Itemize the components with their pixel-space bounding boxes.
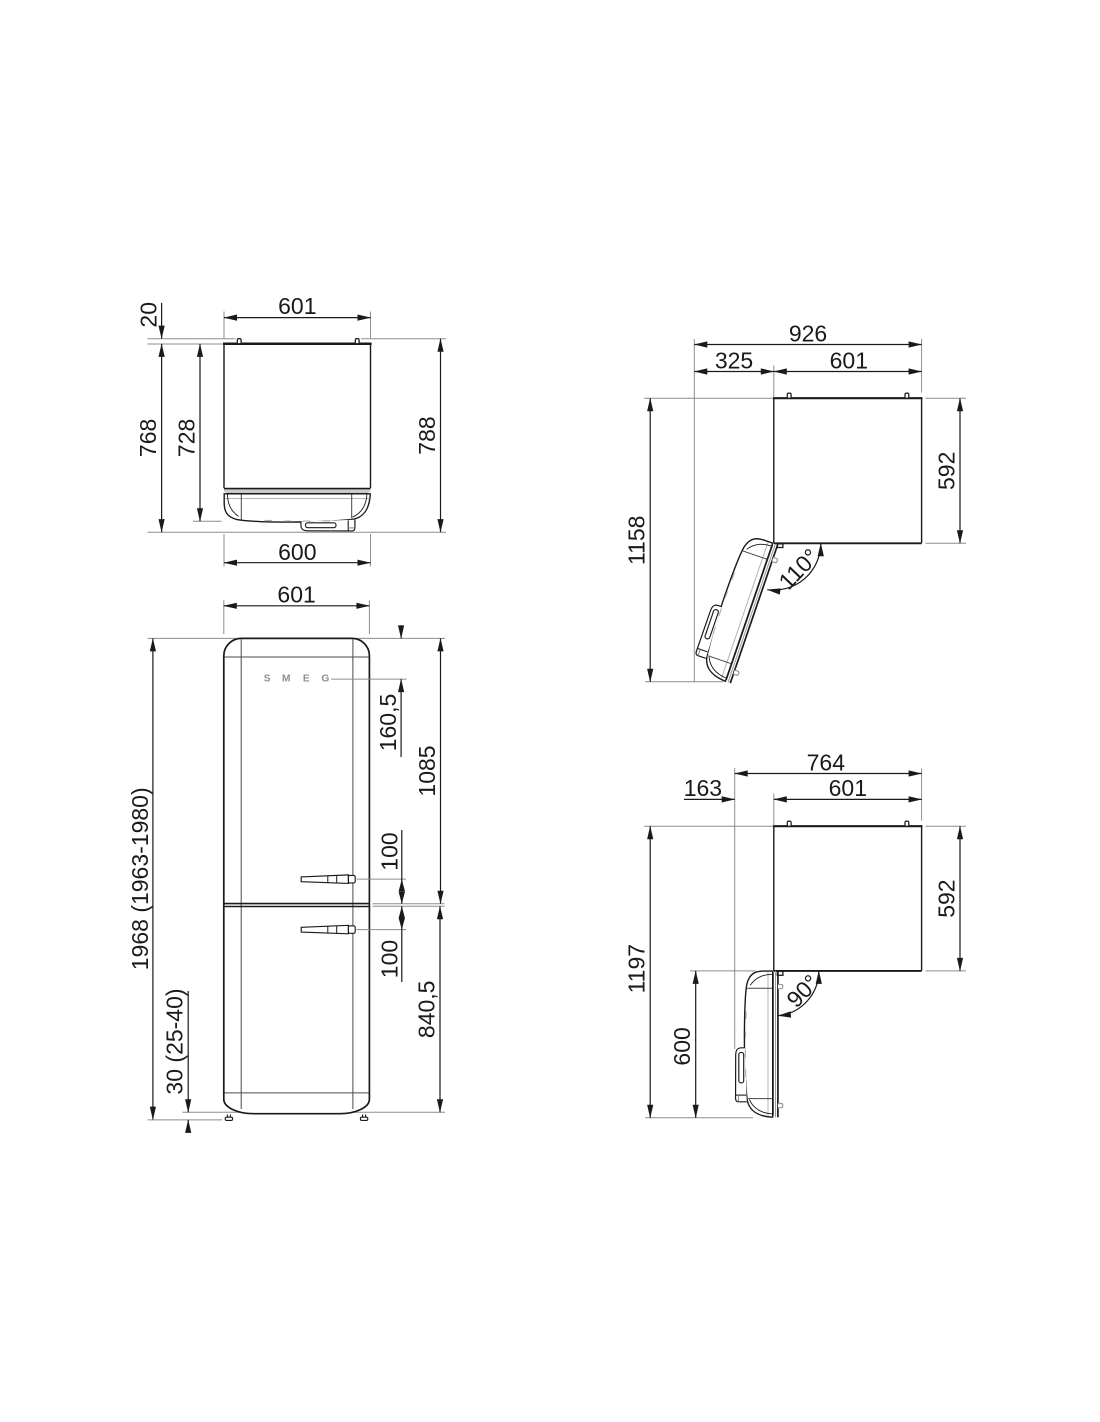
svg-text:788: 788 bbox=[414, 416, 440, 454]
svg-text:S: S bbox=[264, 673, 271, 684]
svg-text:90°: 90° bbox=[781, 969, 824, 1012]
svg-text:601: 601 bbox=[278, 293, 316, 319]
svg-text:20: 20 bbox=[136, 302, 162, 328]
svg-text:840,5: 840,5 bbox=[414, 981, 440, 1039]
svg-text:926: 926 bbox=[789, 320, 827, 346]
svg-text:163: 163 bbox=[684, 775, 722, 801]
svg-text:1158: 1158 bbox=[624, 516, 650, 565]
svg-text:728: 728 bbox=[173, 419, 199, 457]
svg-text:110°: 110° bbox=[773, 543, 824, 594]
svg-text:M: M bbox=[282, 673, 291, 684]
svg-text:160,5: 160,5 bbox=[375, 694, 401, 752]
svg-text:601: 601 bbox=[277, 582, 315, 608]
svg-text:600: 600 bbox=[669, 1027, 695, 1065]
svg-text:100: 100 bbox=[376, 832, 402, 870]
svg-text:100: 100 bbox=[376, 940, 402, 978]
svg-text:601: 601 bbox=[830, 347, 868, 373]
svg-text:325: 325 bbox=[715, 347, 753, 373]
svg-text:E: E bbox=[303, 673, 310, 684]
svg-text:764: 764 bbox=[807, 749, 846, 775]
svg-text:768: 768 bbox=[135, 419, 161, 457]
svg-text:1085: 1085 bbox=[414, 745, 440, 796]
svg-text:1197: 1197 bbox=[624, 944, 650, 993]
svg-text:592: 592 bbox=[934, 452, 960, 490]
svg-text:G: G bbox=[321, 673, 329, 684]
svg-text:601: 601 bbox=[829, 775, 867, 801]
svg-text:30 (25-40): 30 (25-40) bbox=[161, 988, 187, 1094]
svg-text:600: 600 bbox=[278, 539, 316, 565]
svg-text:592: 592 bbox=[934, 879, 960, 917]
svg-text:1968 (1963-1980): 1968 (1963-1980) bbox=[127, 787, 153, 970]
